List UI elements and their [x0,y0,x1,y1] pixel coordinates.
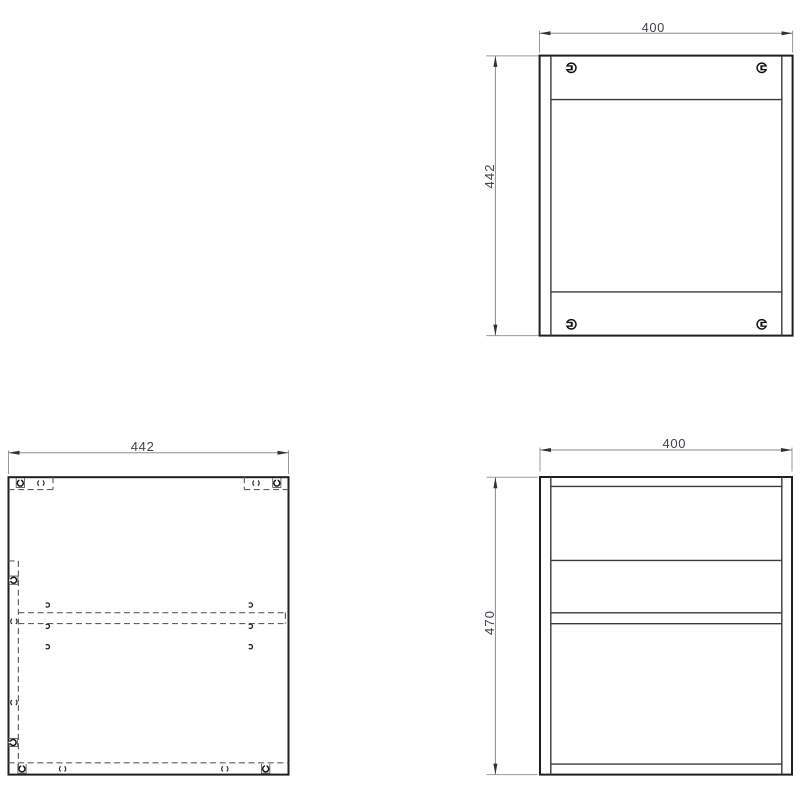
svg-text:470: 470 [482,611,497,635]
svg-text:400: 400 [663,436,686,451]
svg-text:442: 442 [131,439,154,454]
svg-text:442: 442 [482,165,497,189]
svg-text:400: 400 [642,21,665,35]
